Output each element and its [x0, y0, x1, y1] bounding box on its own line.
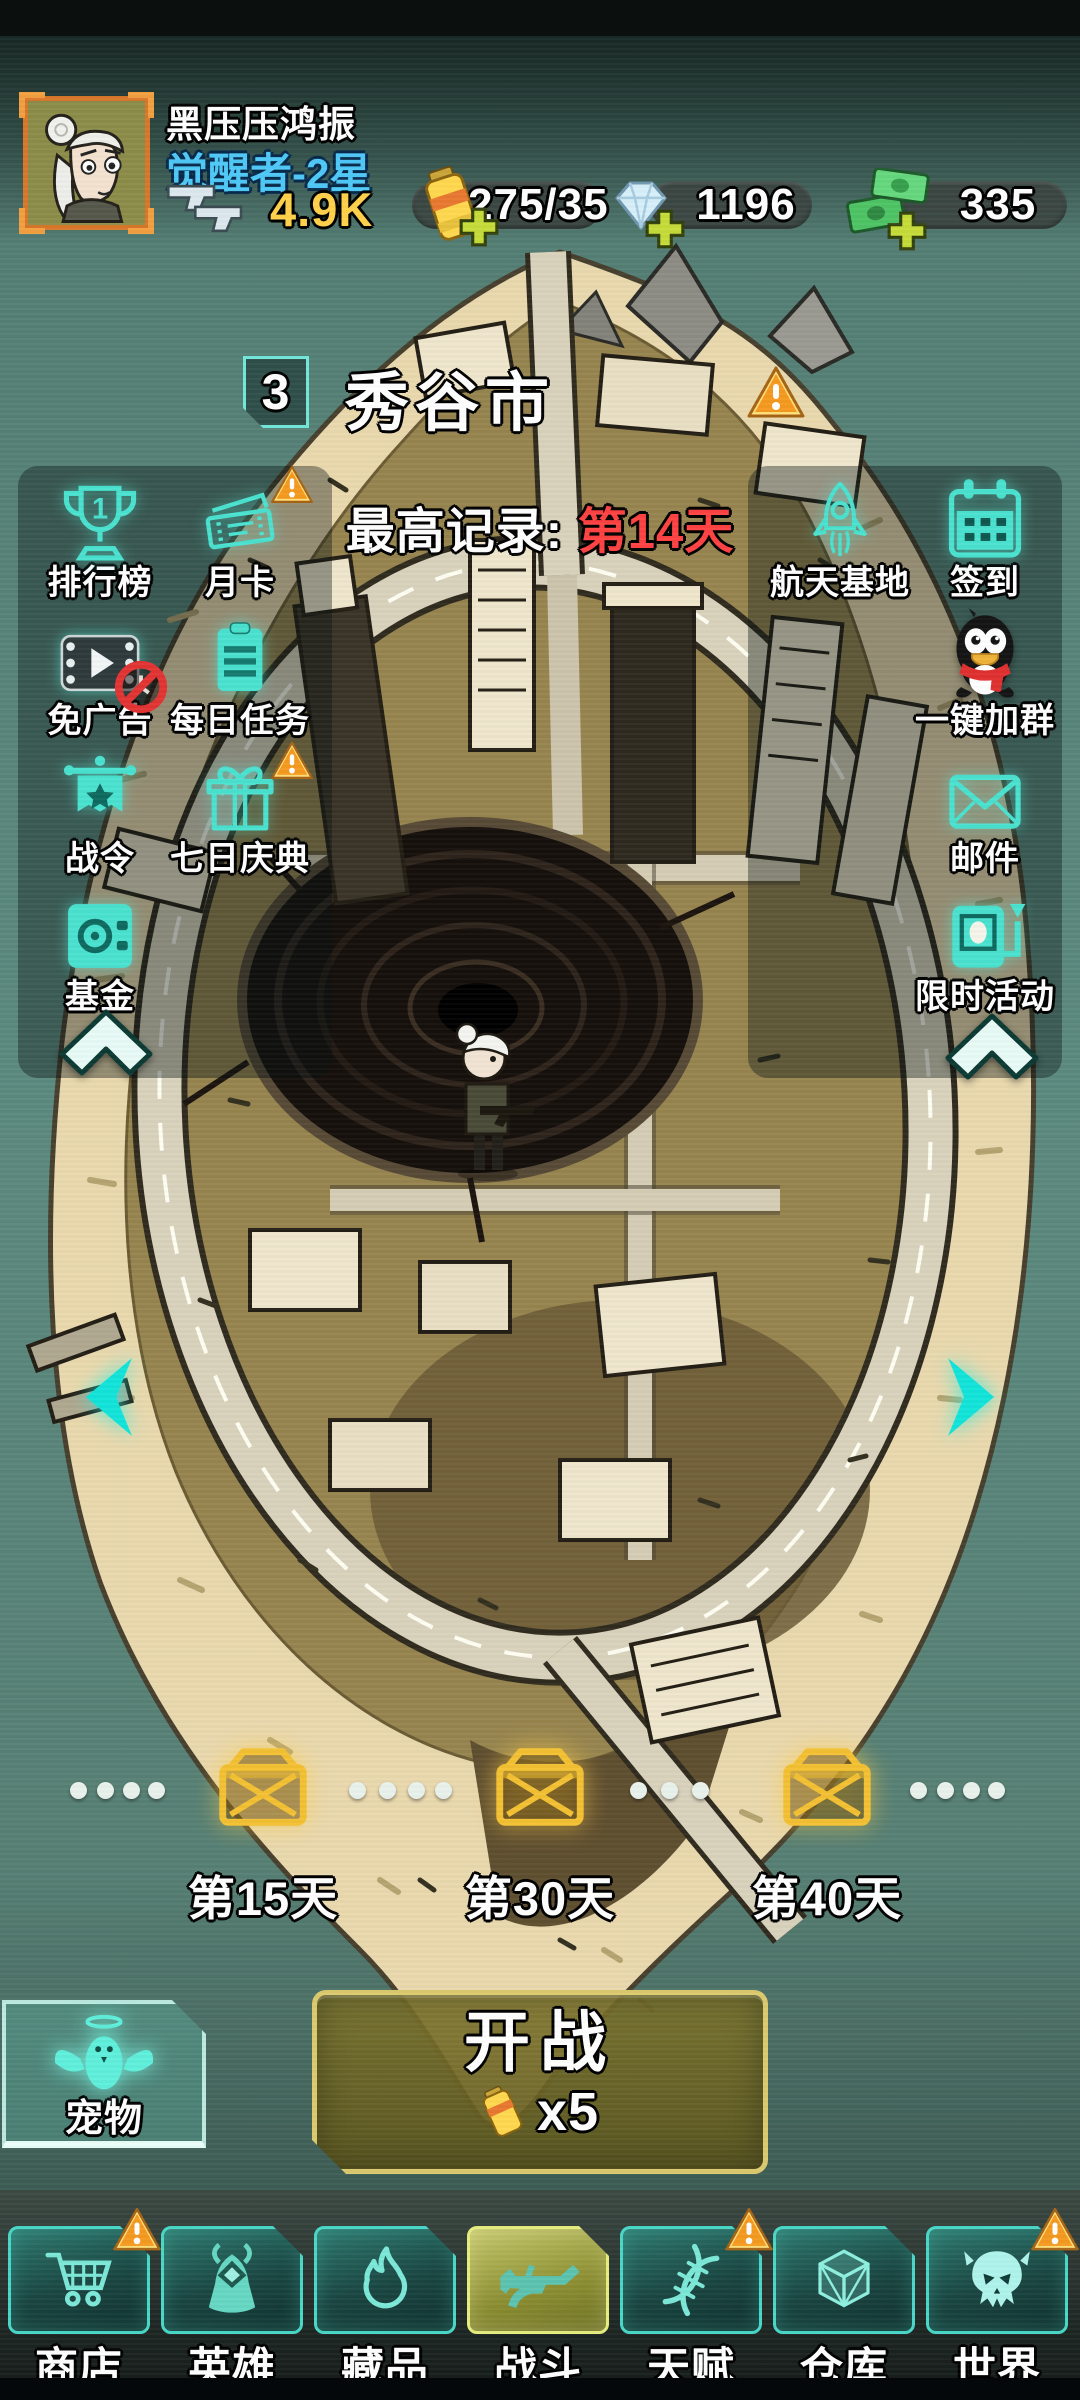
progress-dot: [408, 1782, 425, 1799]
progress-dot: [692, 1782, 709, 1799]
monthly-card-button[interactable]: 月卡: [154, 472, 326, 604]
avatar-corner-icon: [128, 208, 154, 234]
progress-dot: [70, 1782, 87, 1799]
milestone-day30-label: 第30天: [430, 1860, 650, 1929]
timed-event-icon: [939, 886, 1031, 978]
stage-title: 秀谷市: [297, 352, 603, 444]
seven-day-event-button[interactable]: 七日庆典: [154, 748, 326, 880]
gesture-bar: [0, 2378, 1080, 2400]
pet-button[interactable]: 宠物: [2, 2000, 206, 2148]
chevron-right-icon: [942, 1356, 1002, 1438]
chevron-up-icon: [942, 1010, 1042, 1084]
angel-pet-icon: [46, 2004, 162, 2100]
daily-tasks-label: 每日任务: [170, 702, 310, 740]
milestone-chest-day15[interactable]: [207, 1734, 319, 1842]
mail-icon: [940, 748, 1030, 840]
next-stage-arrow[interactable]: [942, 1356, 1002, 1438]
mail-label: 邮件: [950, 840, 1020, 878]
energy-plus-icon[interactable]: [458, 206, 500, 248]
rocket-icon: [799, 472, 881, 564]
nav-tab-collectibles[interactable]: [314, 2226, 456, 2334]
game-screen: 黑压压鸿振 觉醒者-2星 4.9K 275/35 1196 335: [0, 0, 1080, 2400]
hero-icon: [192, 2239, 272, 2321]
daily-tasks-icon: [200, 610, 280, 702]
milestone-chest-day30[interactable]: [484, 1734, 596, 1842]
check-in-button[interactable]: 签到: [899, 472, 1071, 604]
battle-label: 开战: [464, 2005, 616, 2079]
fund-button[interactable]: 基金: [14, 886, 186, 1018]
progress-dot: [937, 1782, 954, 1799]
progress-dot: [988, 1782, 1005, 1799]
progress-dot: [963, 1782, 980, 1799]
battle-cost-multiplier: x5: [537, 2081, 599, 2143]
calendar-icon: [941, 472, 1029, 564]
avatar-corner-icon: [19, 208, 45, 234]
rifle-icon: [492, 2240, 584, 2320]
progress-dot: [349, 1782, 366, 1799]
trophy-icon: 1: [57, 472, 143, 564]
chevron-left-icon: [78, 1356, 138, 1438]
status-bar: [0, 0, 1080, 36]
progress-dot: [910, 1782, 927, 1799]
warning-icon: [1030, 2206, 1080, 2254]
milestone-chest-day40[interactable]: [771, 1734, 883, 1842]
start-battle-button[interactable]: 开战 x5: [312, 1990, 768, 2174]
chevron-up-icon: [56, 1006, 156, 1080]
avatar-corner-icon: [128, 92, 154, 118]
progress-dot: [148, 1782, 165, 1799]
space-base-label: 航天基地: [770, 564, 910, 602]
seven-day-event-label: 七日庆典: [170, 840, 310, 878]
progress-dot: [123, 1782, 140, 1799]
nav-tab-warehouse[interactable]: [773, 2226, 915, 2334]
progress-dot: [97, 1782, 114, 1799]
pet-label: 宠物: [65, 2100, 143, 2138]
warning-icon: [724, 2206, 774, 2254]
battery-icon: [481, 2083, 523, 2141]
warning-icon: [112, 2206, 162, 2254]
warning-icon: [270, 740, 314, 782]
avatar-portrait-icon: [28, 101, 145, 225]
record-value: 第14天: [578, 505, 735, 559]
leaderboard-label: 排行榜: [48, 564, 153, 602]
qq-penguin-icon: [939, 610, 1031, 702]
skull-icon: [957, 2240, 1037, 2320]
player-avatar[interactable]: [23, 96, 150, 230]
timed-event-button[interactable]: 限时活动: [899, 886, 1071, 1018]
ammo-count: 4.9K: [270, 182, 373, 237]
mail-button[interactable]: 邮件: [899, 748, 1071, 880]
progress-dot: [630, 1782, 647, 1799]
gold-chest-icon: [771, 1734, 883, 1842]
check-in-label: 签到: [950, 564, 1020, 602]
warning-icon: [270, 464, 314, 506]
safe-icon: [58, 886, 142, 978]
svg-text:1: 1: [92, 493, 108, 525]
avatar-corner-icon: [19, 92, 45, 118]
crate-icon: [804, 2240, 884, 2320]
previous-stage-arrow[interactable]: [78, 1356, 138, 1438]
cart-icon: [40, 2241, 118, 2319]
cash-plus-icon[interactable]: [886, 210, 928, 252]
progress-dot: [435, 1782, 452, 1799]
milestone-day40-label: 第40天: [717, 1860, 937, 1929]
gold-chest-icon: [207, 1734, 319, 1842]
stage-warning-icon[interactable]: [746, 364, 806, 422]
join-group-label: 一键加群: [915, 702, 1055, 740]
diamond-plus-icon[interactable]: [644, 208, 686, 250]
record-label: 最高记录:: [346, 505, 578, 559]
progress-dot: [379, 1782, 396, 1799]
daily-tasks-button[interactable]: 每日任务: [154, 610, 326, 742]
dna-icon: [652, 2240, 730, 2320]
battle-pass-label: 战令: [65, 840, 135, 878]
gold-chest-icon: [484, 1734, 596, 1842]
join-group-button[interactable]: 一键加群: [899, 610, 1071, 742]
nav-tab-heroes[interactable]: [161, 2226, 303, 2334]
battle-cost: x5: [481, 2081, 599, 2143]
battle-pass-flag-icon: [57, 748, 143, 840]
monthly-card-label: 月卡: [205, 564, 275, 602]
milestone-day15-label: 第15天: [153, 1860, 373, 1929]
nav-tab-battle[interactable]: [467, 2226, 609, 2334]
collapse-right-menu-button[interactable]: [942, 1010, 1042, 1084]
collapse-left-menu-button[interactable]: [56, 1006, 156, 1080]
progress-dot: [661, 1782, 678, 1799]
flame-icon: [348, 2240, 422, 2320]
dual-pistols-icon: [164, 182, 264, 236]
